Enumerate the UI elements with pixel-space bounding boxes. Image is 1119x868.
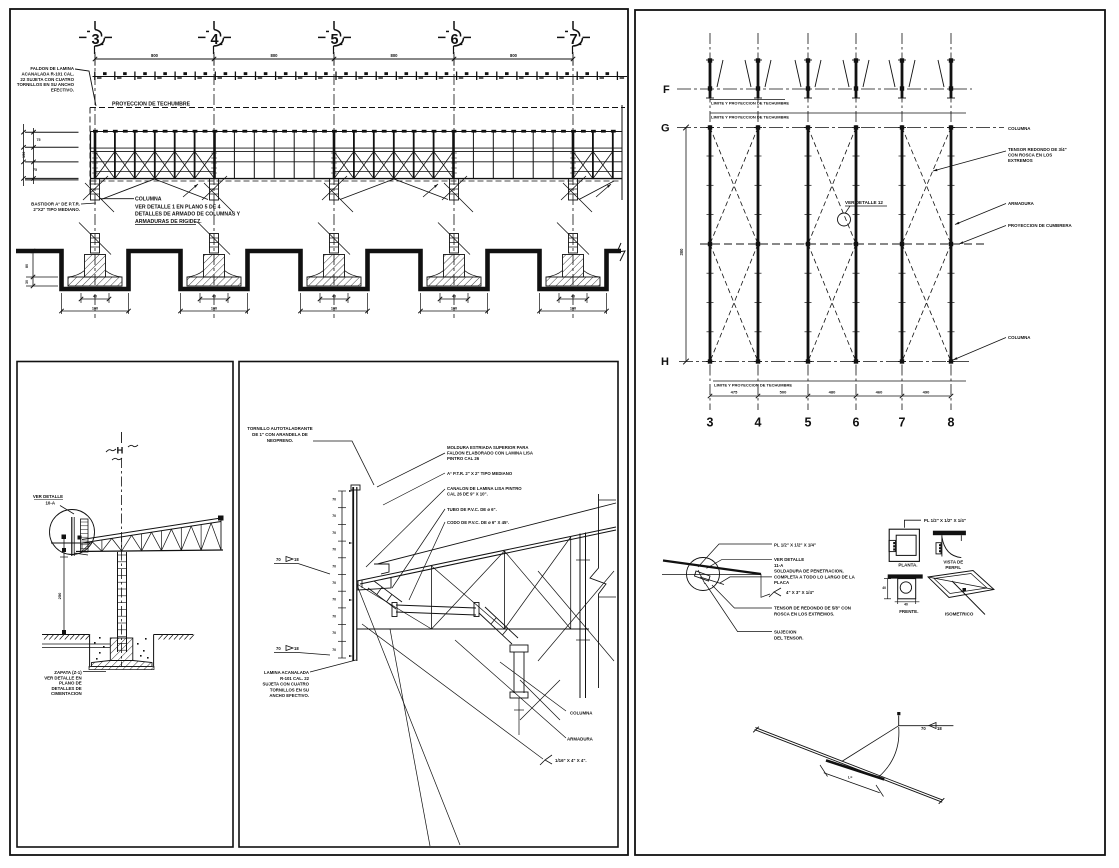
svg-text:BASTIDOR A° DE P.T.R.: BASTIDOR A° DE P.T.R. [31,202,80,207]
svg-text:70: 70 [332,581,336,585]
svg-text:100: 100 [92,307,98,311]
svg-text:18: 18 [294,557,299,562]
svg-text:800: 800 [510,53,518,58]
svg-text:COMPLETA A TODO LO LARGO DE LA: COMPLETA A TODO LO LARGO DE LA [774,574,856,579]
svg-text:CANALON DE LAMINA LISA PINTRO: CANALON DE LAMINA LISA PINTRO [447,486,522,491]
svg-text:CIMENTACION: CIMENTACION [51,691,82,696]
svg-text:100: 100 [211,307,217,311]
svg-text:VER DETALLE: VER DETALLE [774,557,804,562]
svg-text:TENSOR REDONDO DE 3/4": TENSOR REDONDO DE 3/4" [1008,147,1067,152]
svg-text:70: 70 [332,498,336,502]
svg-text:11-A: 11-A [774,563,784,568]
svg-text:480: 480 [829,390,836,395]
svg-text:4: 4 [755,416,762,430]
svg-text:NEOPRENO.: NEOPRENO. [267,438,293,443]
svg-text:ACANALADA R-101 CAL.: ACANALADA R-101 CAL. [21,71,74,76]
svg-text:ARMADURA: ARMADURA [1008,201,1035,206]
svg-text:TENSOR DE REDONDO DE 5/8" CON: TENSOR DE REDONDO DE 5/8" CON [774,606,851,611]
svg-text:5: 5 [805,416,812,430]
svg-text:SUJETA CON CUATRO: SUJETA CON CUATRO [263,682,310,687]
svg-text:PL 1/2" X 1/2" X 1/4": PL 1/2" X 1/2" X 1/4" [774,543,816,548]
svg-text:10-A: 10-A [45,501,55,506]
svg-text:PL 1/2" X 1/2" X 1/4": PL 1/2" X 1/2" X 1/4" [924,518,966,523]
svg-text:ARMADURA: ARMADURA [567,737,594,742]
svg-text:PLANTA.: PLANTA. [898,563,917,568]
svg-text:80: 80 [25,264,29,268]
svg-text:R-101 CAL. 22: R-101 CAL. 22 [280,676,310,681]
svg-text:460: 460 [876,390,883,395]
svg-text:DE 1" CON ARANDELA DE: DE 1" CON ARANDELA DE [252,432,308,437]
svg-text:G: G [661,123,670,135]
svg-text:VER DETALLE EN: VER DETALLE EN [44,675,82,680]
svg-text:EFECTIVO.: EFECTIVO. [51,88,74,93]
svg-text:ROSCA EN LOS EXTREMOS.: ROSCA EN LOS EXTREMOS. [774,611,834,616]
svg-text:40: 40 [332,295,336,299]
svg-text:EXTREMOS: EXTREMOS [1008,158,1033,163]
svg-text:100: 100 [570,307,576,311]
svg-text:FALDON DE LAMINA: FALDON DE LAMINA [30,66,74,71]
svg-text:70: 70 [332,514,336,518]
svg-text:SOLDADURA DE PENETRACION,: SOLDADURA DE PENETRACION, [774,569,844,574]
svg-text:70: 70 [332,531,336,535]
svg-text:LIMITE Y PROYECCION DE TECHUMB: LIMITE Y PROYECCION DE TECHUMBRE [711,115,789,120]
svg-text:VER DETALLE 12: VER DETALLE 12 [845,200,883,205]
svg-text:PROYECCION DE TECHUMBRE: PROYECCION DE TECHUMBRE [112,102,191,108]
svg-text:75: 75 [33,168,37,172]
svg-text:H: H [117,446,124,457]
svg-text:70: 70 [921,726,926,731]
svg-text:70: 70 [332,564,336,568]
svg-text:TORNILLOS EN SU: TORNILLOS EN SU [270,687,309,692]
svg-text:TUBO DE P.V.C. DE ø 6".: TUBO DE P.V.C. DE ø 6". [447,507,497,512]
svg-text:DETALLES DE ARMADO DE COLUMNAS: DETALLES DE ARMADO DE COLUMNAS Y [135,212,241,218]
svg-text:PROYECCION DE CUMBRERA: PROYECCION DE CUMBRERA [1008,223,1072,228]
svg-text:TORNILLO AUTOTALADRANTE: TORNILLO AUTOTALADRANTE [247,426,313,431]
svg-text:150: 150 [22,152,26,158]
svg-text:18: 18 [937,726,942,731]
svg-text:ANCHO EFECTIVO.: ANCHO EFECTIVO. [269,693,309,698]
svg-text:PLACA: PLACA [774,580,790,585]
svg-text:3: 3 [707,416,714,430]
svg-text:250: 250 [57,592,62,599]
svg-text:LIMITE Y PROYECCION DE TECHUMB: LIMITE Y PROYECCION DE TECHUMBRE [714,383,792,388]
svg-text:8: 8 [948,416,955,430]
svg-text:7: 7 [899,416,906,430]
svg-text:70: 70 [332,648,336,652]
svg-text:800: 800 [271,53,279,58]
svg-text:30: 30 [25,280,29,284]
svg-text:LIMITE Y PROYECCION DE TECHUMB: LIMITE Y PROYECCION DE TECHUMBRE [711,101,789,106]
svg-text:A° P.T.R. 2" X 2" TIPO MEDIANO: A° P.T.R. 2" X 2" TIPO MEDIANO [447,471,513,476]
svg-text:VER DETALLE 1 EN PLANO 5 DE 4: VER DETALLE 1 EN PLANO 5 DE 4 [135,205,221,211]
svg-text:FALDON ELABORADO CON LAMINA LI: FALDON ELABORADO CON LAMINA LISA [447,451,533,456]
svg-text:COLUMNA: COLUMNA [1008,335,1031,340]
svg-text:PERFIL: PERFIL [945,565,961,570]
svg-text:70: 70 [332,614,336,618]
svg-text:800: 800 [391,53,399,58]
svg-text:PINTRO CAL 26: PINTRO CAL 26 [447,456,480,461]
svg-text:6: 6 [853,416,860,430]
svg-text:2"X2" TIPO MEDIANO.: 2"X2" TIPO MEDIANO. [33,207,80,212]
svg-text:H: H [661,356,669,368]
svg-text:CODO DE P.V.C. DE ø 6" X 45°.: CODO DE P.V.C. DE ø 6" X 45°. [447,520,509,525]
svg-text:ISOMETRICO: ISOMETRICO [945,612,974,617]
svg-text:40: 40 [571,295,575,299]
svg-text:FRENTE.: FRENTE. [899,609,918,614]
svg-text:100: 100 [451,307,457,311]
svg-text:PLANO DE: PLANO DE [59,681,82,686]
svg-text:490: 490 [923,390,930,395]
svg-text:CON ROSCA EN LOS: CON ROSCA EN LOS [1008,153,1052,158]
svg-text:TORNILLOS EN SU ANCHO: TORNILLOS EN SU ANCHO [17,82,75,87]
svg-text:4" X 3" X 1/4": 4" X 3" X 1/4" [786,590,814,595]
svg-text:100: 100 [331,307,337,311]
svg-text:800: 800 [151,53,159,58]
svg-text:40: 40 [452,295,456,299]
svg-text:70: 70 [332,548,336,552]
svg-text:70: 70 [332,598,336,602]
svg-text:18: 18 [294,646,299,651]
svg-text:DETALLES DE: DETALLES DE [52,686,82,691]
svg-text:70: 70 [276,557,281,562]
svg-text:40: 40 [93,295,97,299]
svg-text:VER DETALLE: VER DETALLE [33,494,63,499]
svg-text:475: 475 [731,390,738,395]
svg-text:70: 70 [276,646,281,651]
svg-text:500: 500 [780,390,787,395]
svg-text:DEL TENSOR.: DEL TENSOR. [774,635,803,640]
svg-text:40: 40 [212,295,216,299]
svg-text:ARMADURAS DE RIGIDEZ.: ARMADURAS DE RIGIDEZ. [135,219,202,225]
svg-text:SUJECION: SUJECION [774,630,796,635]
svg-text:L=: L= [848,776,852,780]
svg-text:COLUMNA: COLUMNA [135,197,162,203]
svg-text:22 SUJETA CON CUATRO: 22 SUJETA CON CUATRO [20,77,74,82]
svg-text:MOLDURA ESTRIADA SUPERIOR PARA: MOLDURA ESTRIADA SUPERIOR PARA [447,445,528,450]
svg-text:75: 75 [37,138,41,142]
svg-text:300: 300 [679,248,684,256]
svg-text:1/16" X 4" X 4".: 1/16" X 4" X 4". [555,758,587,763]
svg-text:COLUMNA: COLUMNA [570,711,593,716]
svg-text:VISTA DE: VISTA DE [943,560,963,565]
svg-text:40: 40 [904,603,908,607]
svg-text:F: F [663,84,670,96]
svg-text:COLUMNA: COLUMNA [1008,126,1031,131]
svg-text:40: 40 [882,586,886,590]
svg-text:70: 70 [332,631,336,635]
svg-text:LAMINA ACANALADA: LAMINA ACANALADA [264,670,309,675]
svg-text:CAL 26 DE 9" X 10".: CAL 26 DE 9" X 10". [447,492,488,497]
svg-text:ZAPATA (Z-1): ZAPATA (Z-1) [54,670,82,675]
